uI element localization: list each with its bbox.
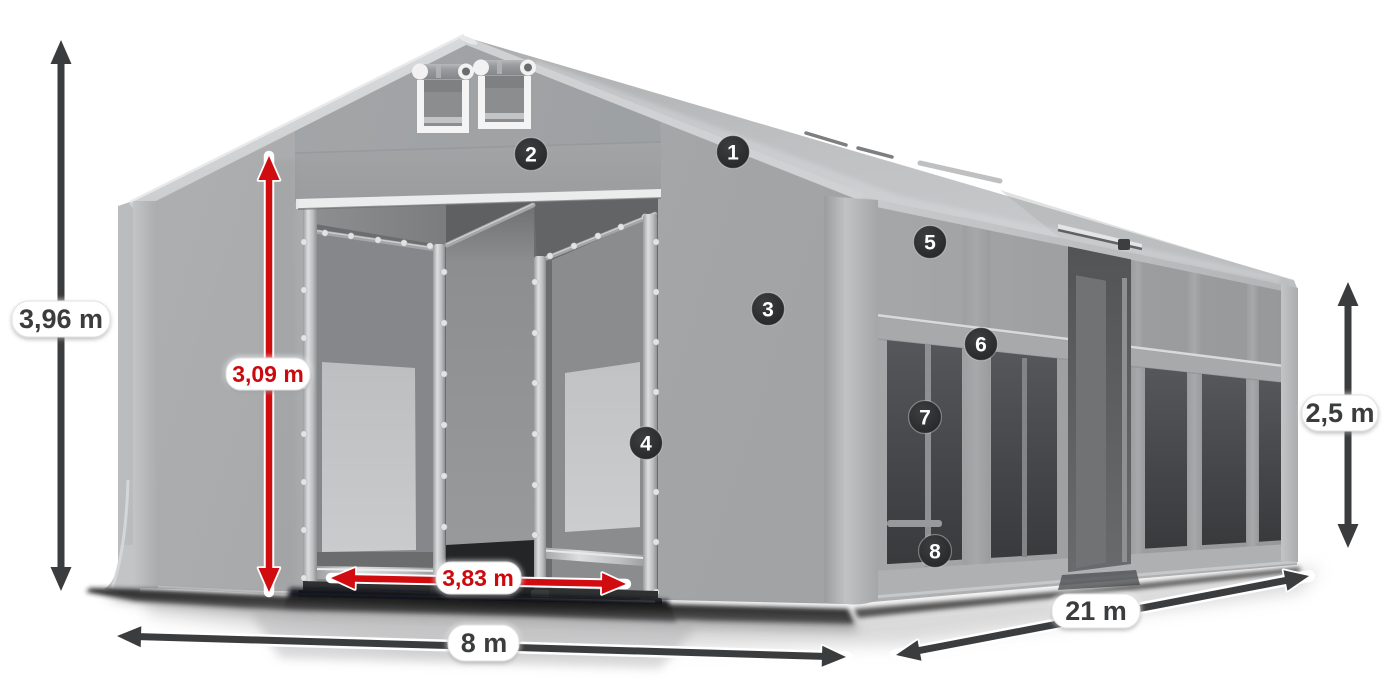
svg-text:3: 3 (762, 299, 774, 322)
svg-text:4: 4 (640, 433, 652, 456)
svg-text:6: 6 (975, 334, 987, 357)
svg-text:3,83 m: 3,83 m (442, 565, 514, 591)
svg-text:3,09 m: 3,09 m (232, 361, 304, 387)
svg-text:1: 1 (727, 142, 739, 165)
svg-text:2: 2 (525, 144, 537, 167)
svg-text:2,5 m: 2,5 m (1305, 398, 1374, 428)
svg-text:8 m: 8 m (461, 628, 508, 658)
svg-text:8: 8 (929, 541, 941, 564)
svg-text:5: 5 (924, 232, 936, 255)
svg-text:7: 7 (919, 407, 931, 430)
svg-text:21 m: 21 m (1065, 596, 1127, 626)
svg-text:3,96 m: 3,96 m (19, 304, 103, 334)
